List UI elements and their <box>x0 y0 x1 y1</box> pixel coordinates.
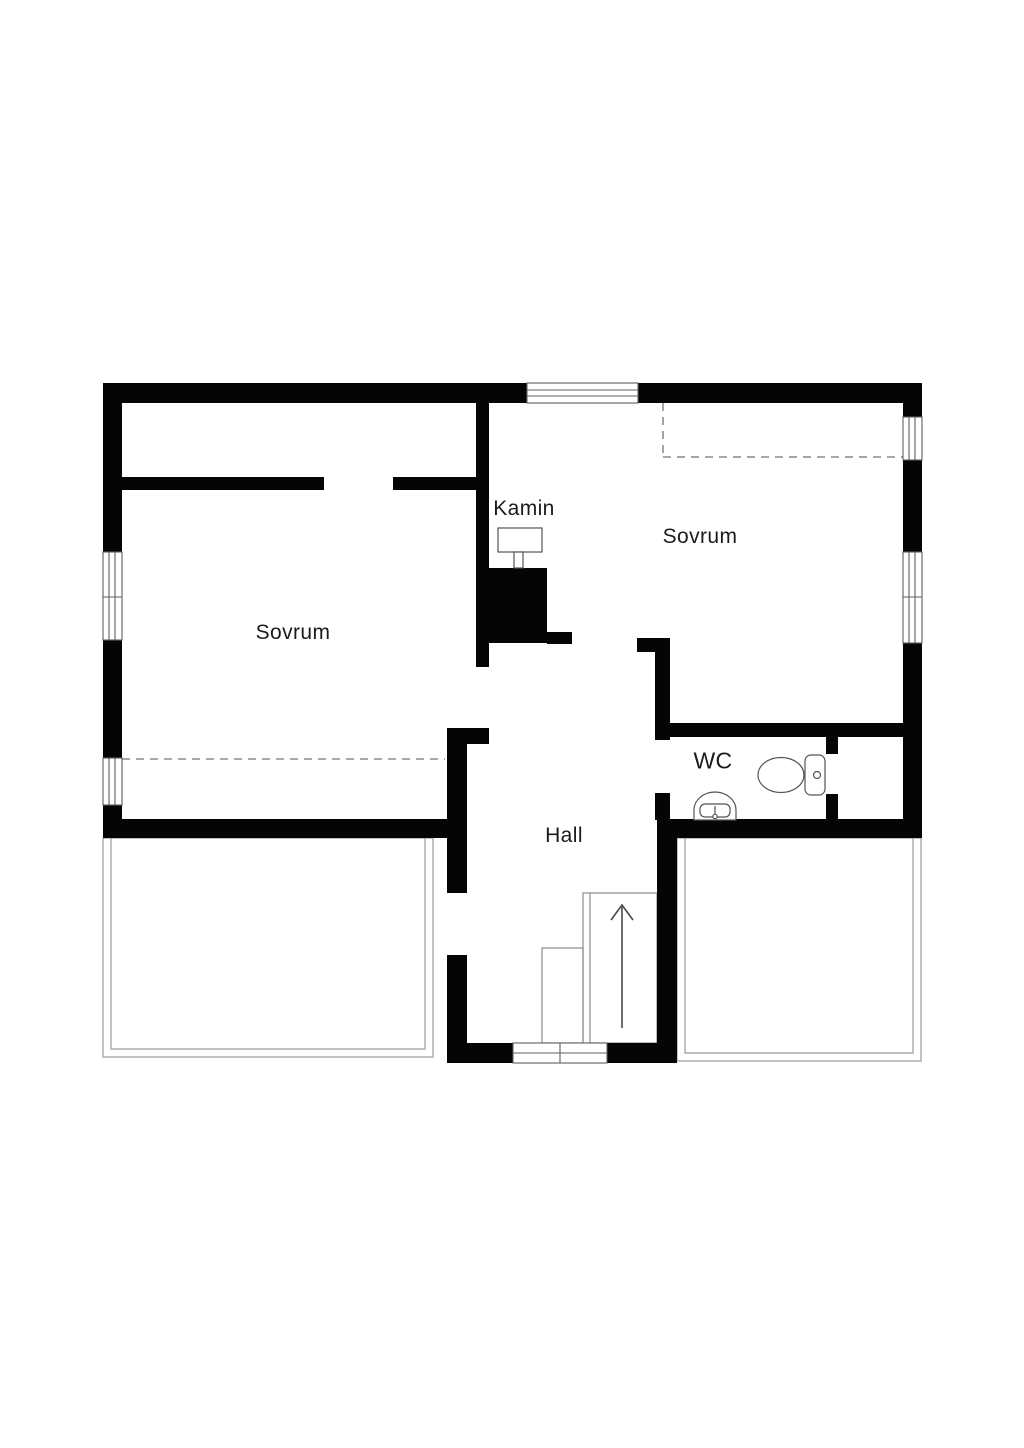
window-icon <box>903 552 922 643</box>
wall-segment <box>393 477 477 490</box>
walls <box>103 383 922 1063</box>
wall-segment <box>655 793 670 820</box>
window-icon <box>513 1043 607 1063</box>
wall-segment <box>103 819 467 838</box>
wall-segment <box>655 723 922 737</box>
floor-plan-drawing <box>0 0 1024 1448</box>
wall-segment <box>826 794 838 820</box>
wall-segment <box>637 638 670 652</box>
window-icon <box>903 417 922 460</box>
sink-icon <box>694 792 736 820</box>
wall-segment <box>447 728 489 744</box>
wall-segment <box>657 819 922 838</box>
toilet-icon <box>758 755 825 795</box>
window-icon <box>103 552 122 640</box>
wall-segment <box>447 744 467 819</box>
wall-segment <box>103 383 122 552</box>
wall-segment <box>103 383 527 403</box>
wall-segment <box>903 460 922 552</box>
wall-segment <box>122 477 324 490</box>
chimney-mass <box>476 568 547 643</box>
room-label-wc: WC <box>693 748 732 775</box>
floor-plan: Sovrum Sovrum Kamin WC Hall <box>0 0 1024 1448</box>
wall-segment <box>657 838 677 1043</box>
wall-segment <box>476 643 489 667</box>
staircase <box>542 893 657 1043</box>
window-icon <box>103 758 122 805</box>
wall-segment <box>447 1043 513 1063</box>
wall-segment <box>826 737 838 754</box>
wall-segment <box>476 403 489 568</box>
stairs-up-arrow-icon <box>611 905 633 1028</box>
wall-segment <box>607 1043 677 1063</box>
wall-segment <box>447 838 467 893</box>
fireplace-label: Kamin <box>493 497 555 521</box>
window-icon <box>527 383 638 403</box>
wall-segment <box>103 640 122 758</box>
wall-segment <box>638 383 922 403</box>
room-label-hall: Hall <box>545 824 583 848</box>
room-label-bedroom-right: Sovrum <box>663 525 738 549</box>
room-label-bedroom-left: Sovrum <box>256 621 331 645</box>
fireplace-icon <box>498 528 542 568</box>
side-storage-outline <box>103 838 921 1061</box>
wall-segment <box>903 383 922 417</box>
wall-segment <box>547 632 572 644</box>
wall-segment <box>903 643 922 838</box>
